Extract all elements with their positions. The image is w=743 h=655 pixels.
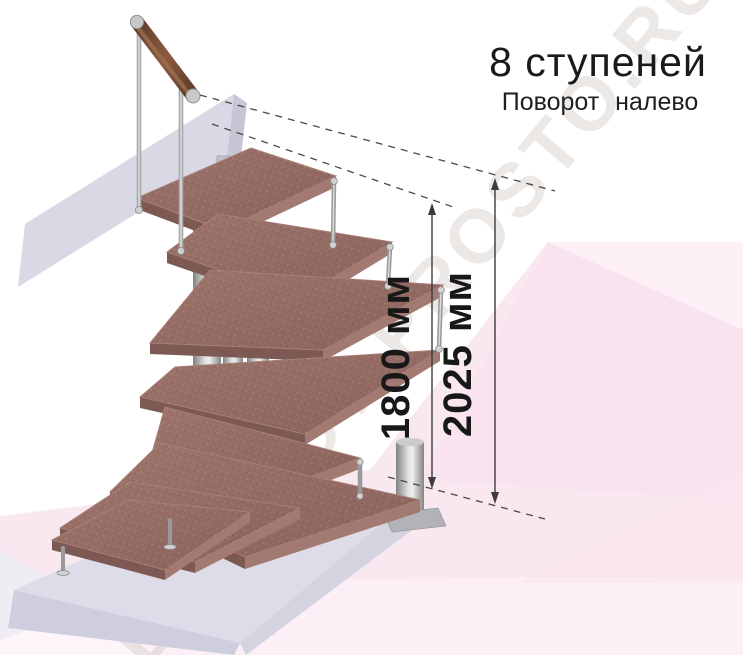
product-diagram: LESTNICY-PROSTO.RU	[0, 0, 743, 655]
page-title: 8 ступеней	[489, 39, 707, 85]
dimension-label-2025: 2025 мм	[436, 271, 480, 437]
handrail-cap	[130, 15, 143, 28]
staircase-3d-render: LESTNICY-PROSTO.RU	[0, 0, 743, 655]
baluster-base	[135, 206, 142, 213]
baluster-base	[177, 247, 184, 254]
rod-highlight	[333, 181, 334, 245]
handrail-cap	[186, 89, 200, 103]
dimension-label-1800: 1800 мм	[374, 274, 418, 440]
page-subtitle: Поворот налево	[502, 88, 699, 116]
